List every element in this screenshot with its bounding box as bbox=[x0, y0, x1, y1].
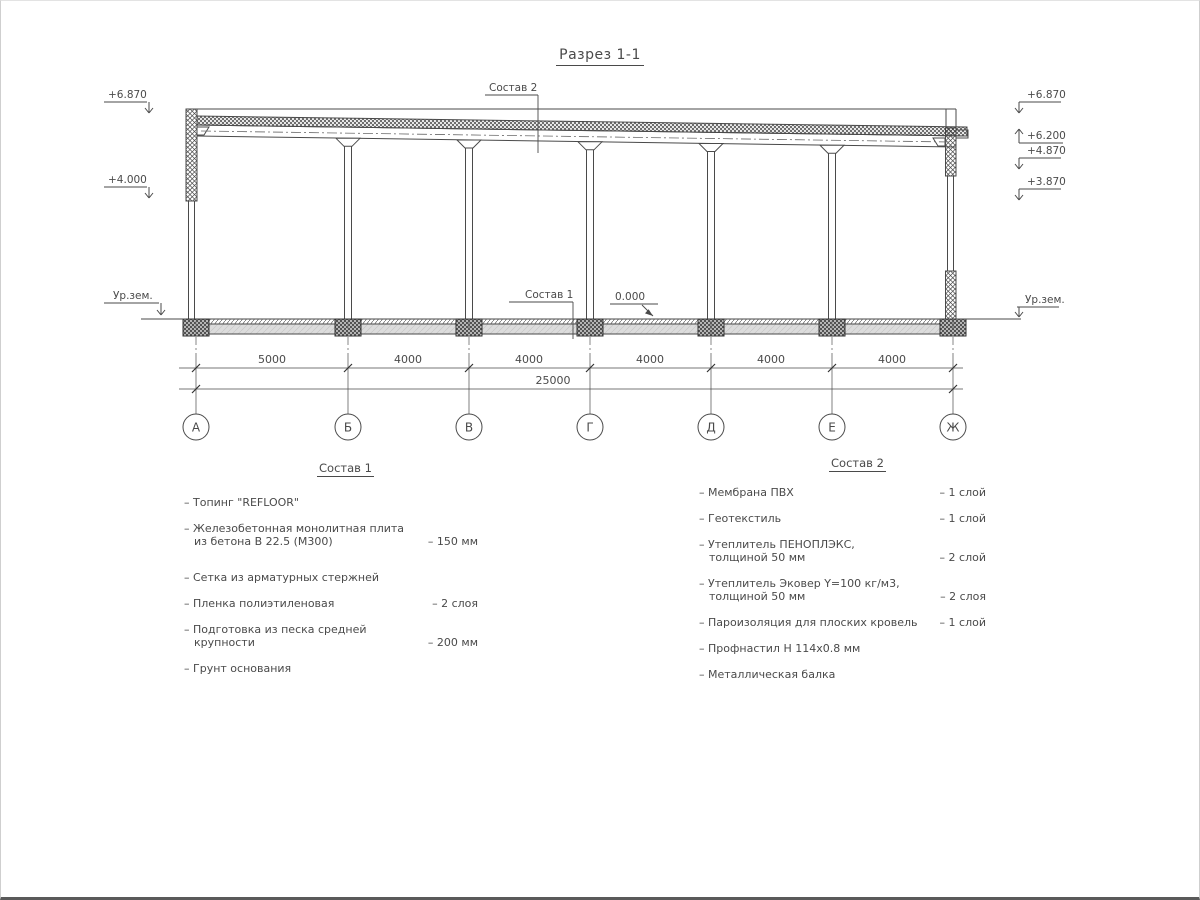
sostav1-list: – Топинг "REFLOOR" – Железобетонная моно… bbox=[184, 496, 478, 688]
column bbox=[457, 140, 481, 319]
elevation-marks-left: +6.870 +4.000 Ур.зем. bbox=[104, 89, 165, 315]
list-item: – Мембрана ПВХ – 1 слой bbox=[699, 486, 986, 499]
grid-bubble-a: А bbox=[183, 414, 209, 440]
dim-span-b-v: 4000 bbox=[394, 353, 422, 366]
ground-level-label: Ур.зем. bbox=[1025, 294, 1065, 306]
item-value: – 1 слой bbox=[940, 486, 986, 499]
callout-sostav1-label: Состав 1 bbox=[525, 289, 573, 301]
elevation-value: +3.870 bbox=[1027, 176, 1066, 188]
callout-sostav2: Состав 2 bbox=[485, 82, 538, 153]
sostav2-heading: Состав 2 bbox=[829, 456, 886, 470]
list-item: – Пленка полиэтиленовая – 2 слоя bbox=[184, 597, 478, 610]
item-value: – 2 слоя bbox=[940, 590, 986, 603]
list-item: – Грунт основания bbox=[184, 662, 478, 675]
item-text: – Железобетонная монолитная плита из бет… bbox=[184, 522, 404, 548]
right-wall bbox=[933, 109, 968, 319]
grid-letter: А bbox=[192, 421, 201, 435]
grid-bubble-b: Б bbox=[335, 414, 361, 440]
column bbox=[578, 142, 602, 319]
list-item: – Утеплитель Эковер Y=100 кг/м3, толщино… bbox=[699, 577, 986, 603]
list-item: – Железобетонная монолитная плита из бет… bbox=[184, 522, 478, 548]
item-text: – Профнастил Н 114х0.8 мм bbox=[699, 642, 860, 655]
column bbox=[699, 144, 723, 320]
elevation-value: +6.870 bbox=[108, 89, 147, 101]
drawing-sheet: Разрез 1-1 bbox=[0, 0, 1200, 900]
list-item: – Геотекстиль – 1 слой bbox=[699, 512, 986, 525]
elevation-mark: +6.200 bbox=[1015, 129, 1066, 143]
dim-overall: 25000 bbox=[536, 374, 571, 387]
floor-slab bbox=[183, 319, 966, 336]
dim-span-e-zh: 4000 bbox=[878, 353, 906, 366]
grid-bubbles: А Б В Г Д Е Ж bbox=[183, 414, 966, 440]
elevation-value: +4.000 bbox=[108, 174, 147, 186]
grid-letter: Б bbox=[344, 421, 352, 435]
elevation-mark: +6.870 bbox=[1015, 89, 1066, 113]
elevation-mark: +3.870 bbox=[1015, 176, 1066, 200]
span-dimension-line: 5000 4000 4000 4000 4000 4000 bbox=[179, 353, 963, 372]
zero-level-mark: 0.000 bbox=[610, 291, 658, 316]
dim-span-a-b: 5000 bbox=[258, 353, 286, 366]
ground-level-label: Ур.зем. bbox=[113, 290, 153, 302]
item-value: – 200 мм bbox=[428, 636, 478, 649]
elevation-value: +6.870 bbox=[1027, 89, 1066, 101]
zero-level-value: 0.000 bbox=[615, 291, 645, 303]
item-text: – Геотекстиль bbox=[699, 512, 782, 525]
left-wall bbox=[186, 109, 209, 319]
elevation-value: +6.200 bbox=[1027, 130, 1066, 142]
column bbox=[336, 138, 360, 319]
grid-letter: В bbox=[465, 421, 473, 435]
item-text: – Подготовка из песка средней крупности bbox=[184, 623, 367, 649]
sostav1-heading: Состав 1 bbox=[317, 461, 374, 475]
section-drawing: 5000 4000 4000 4000 4000 4000 25000 А Б bbox=[1, 1, 1200, 461]
list-item: – Профнастил Н 114х0.8 мм bbox=[699, 642, 986, 655]
elevation-mark: +4.870 bbox=[1015, 145, 1066, 169]
item-text: – Утеплитель ПЕНОПЛЭКС, толщиной 50 мм bbox=[699, 538, 855, 564]
grid-bubble-zh: Ж bbox=[940, 414, 966, 440]
item-value: – 1 слой bbox=[940, 512, 986, 525]
item-text: – Топинг "REFLOOR" bbox=[184, 496, 299, 509]
item-value: – 150 мм bbox=[428, 535, 478, 548]
grid-letter: Д bbox=[706, 421, 715, 435]
grid-bubble-d: Д bbox=[698, 414, 724, 440]
elevation-mark: +4.000 bbox=[104, 174, 153, 198]
column bbox=[820, 145, 844, 319]
list-item: – Утеплитель ПЕНОПЛЭКС, толщиной 50 мм –… bbox=[699, 538, 986, 564]
item-text: – Грунт основания bbox=[184, 662, 291, 675]
callout-sostav2-label: Состав 2 bbox=[489, 82, 537, 94]
extension-lines bbox=[196, 353, 953, 414]
ground-level-mark: Ур.зем. bbox=[1015, 294, 1065, 317]
grid-letter: Г bbox=[586, 421, 593, 435]
grid-bubble-v: В bbox=[456, 414, 482, 440]
dim-span-v-g: 4000 bbox=[515, 353, 543, 366]
item-text: – Пароизоляция для плоских кровель bbox=[699, 616, 918, 629]
dim-span-g-d: 4000 bbox=[636, 353, 664, 366]
item-text: – Металлическая балка bbox=[699, 668, 835, 681]
sostav2-list: – Мембрана ПВХ – 1 слой – Геотекстиль – … bbox=[699, 486, 986, 694]
item-text: – Мембрана ПВХ bbox=[699, 486, 794, 499]
item-value: – 2 слоя bbox=[432, 597, 478, 610]
dim-span-d-e: 4000 bbox=[757, 353, 785, 366]
list-item: – Пароизоляция для плоских кровель – 1 с… bbox=[699, 616, 986, 629]
overall-dimension-line: 25000 bbox=[179, 374, 963, 393]
grid-bubble-g: Г bbox=[577, 414, 603, 440]
item-text: – Пленка полиэтиленовая bbox=[184, 597, 334, 610]
columns bbox=[336, 138, 844, 319]
building-section bbox=[141, 109, 1021, 336]
elevation-value: +4.870 bbox=[1027, 145, 1066, 157]
grid-letter: Е bbox=[828, 421, 836, 435]
item-text: – Сетка из арматурных стержней bbox=[184, 571, 379, 584]
list-item: – Подготовка из песка средней крупности … bbox=[184, 623, 478, 649]
elevation-mark: +6.870 bbox=[104, 89, 153, 113]
list-item: – Топинг "REFLOOR" bbox=[184, 496, 478, 509]
elevation-marks-right: +6.870 +6.200 +4.870 +3.870 Ур.зем. bbox=[1015, 89, 1066, 317]
grid-letter: Ж bbox=[947, 421, 960, 435]
list-item: – Сетка из арматурных стержней bbox=[184, 571, 478, 584]
grid-bubble-e: Е bbox=[819, 414, 845, 440]
list-item: – Металлическая балка bbox=[699, 668, 986, 681]
item-value: – 1 слой bbox=[940, 616, 986, 629]
item-text: – Утеплитель Эковер Y=100 кг/м3, толщино… bbox=[699, 577, 900, 603]
item-value: – 2 слой bbox=[940, 551, 986, 564]
ground-level-mark: Ур.зем. bbox=[104, 290, 165, 315]
